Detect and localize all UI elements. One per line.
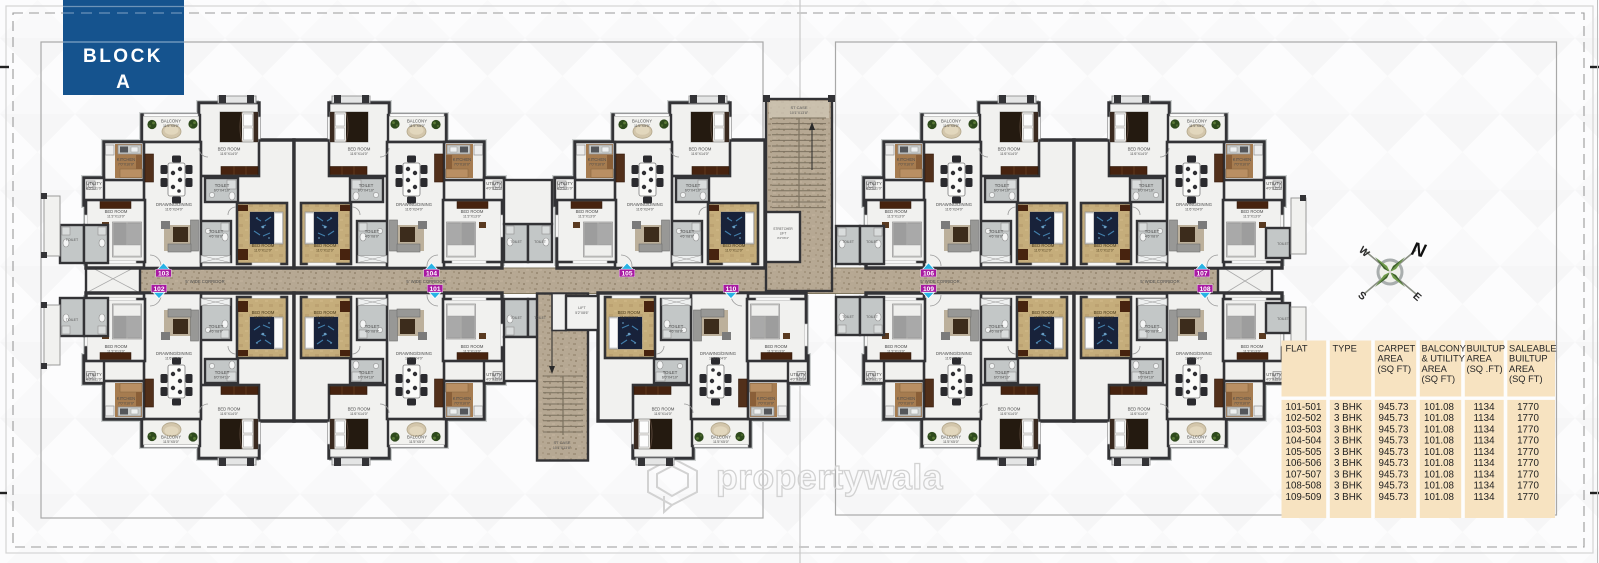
svg-text:4'6"X8'0": 4'6"X8'0" — [209, 330, 224, 334]
svg-text:7'0"X10'0": 7'0"X10'0" — [589, 163, 606, 167]
svg-text:945.73: 945.73 — [1379, 469, 1410, 480]
svg-text:BED ROOM: BED ROOM — [998, 407, 1021, 412]
svg-text:3 BHK: 3 BHK — [1334, 424, 1363, 435]
svg-text:11'5"X5'0": 11'5"X5'0" — [943, 124, 960, 128]
svg-text:BED ROOM: BED ROOM — [314, 243, 337, 248]
svg-text:CARPET: CARPET — [1378, 344, 1416, 354]
svg-text:AREA: AREA — [1509, 364, 1535, 374]
svg-text:KITCHEN: KITCHEN — [757, 396, 775, 401]
svg-text:4'0"X11'0": 4'0"X11'0" — [86, 378, 103, 382]
svg-text:4'0"X11'0": 4'0"X11'0" — [1266, 187, 1283, 191]
svg-text:11'6"X14'0": 11'6"X14'0" — [1130, 412, 1149, 416]
svg-text:TOILET: TOILET — [510, 240, 522, 244]
svg-text:945.73: 945.73 — [1379, 447, 1410, 458]
svg-text:AREA: AREA — [1378, 354, 1404, 364]
svg-text:TOILET: TOILET — [215, 183, 230, 188]
svg-text:11'6"X14'0": 11'6"X14'0" — [691, 152, 710, 156]
svg-text:BED ROOM: BED ROOM — [314, 310, 337, 315]
svg-text:6'0"X4'10": 6'0"X4'10" — [994, 376, 1011, 380]
svg-text:11'5"X5'0": 11'5"X5'0" — [163, 124, 180, 128]
svg-text:BED ROOM: BED ROOM — [723, 243, 746, 248]
svg-text:1134: 1134 — [1473, 458, 1495, 469]
svg-text:3'4"X6'4": 3'4"X6'4" — [777, 236, 789, 240]
svg-text:BED ROOM: BED ROOM — [1094, 310, 1117, 315]
svg-text:7'0"X10'0": 7'0"X10'0" — [898, 402, 915, 406]
svg-text:11'6"X24'0": 11'6"X24'0" — [405, 357, 424, 361]
svg-text:ST CASE: ST CASE — [790, 105, 807, 110]
svg-text:4'0"X11'0": 4'0"X11'0" — [557, 187, 574, 191]
svg-text:103: 103 — [158, 271, 169, 278]
svg-text:11'6"X14'0": 11'6"X14'0" — [350, 412, 369, 416]
svg-text:11'6"X24'0": 11'6"X24'0" — [165, 357, 184, 361]
svg-text:1770: 1770 — [1517, 413, 1539, 424]
svg-text:BED ROOM: BED ROOM — [885, 344, 908, 349]
svg-text:UTILITY: UTILITY — [86, 372, 102, 377]
svg-text:KITCHEN: KITCHEN — [117, 157, 135, 162]
svg-text:11'5"X5'0": 11'5"X5'0" — [943, 440, 960, 444]
svg-text:5'2"X8'6": 5'2"X8'6" — [575, 311, 589, 315]
svg-text:1134: 1134 — [1473, 492, 1495, 503]
svg-text:AREA: AREA — [1467, 354, 1493, 364]
svg-text:BUILTUP: BUILTUP — [1509, 354, 1548, 364]
svg-text:1770: 1770 — [1517, 469, 1539, 480]
svg-text:(SQ .FT): (SQ .FT) — [1467, 364, 1503, 374]
svg-text:11'0"X12'0": 11'0"X12'0" — [1096, 316, 1115, 320]
svg-text:(SQ FT): (SQ FT) — [1422, 374, 1456, 384]
svg-text:SALEABLE: SALEABLE — [1509, 344, 1557, 354]
svg-text:DRAWING/DINING: DRAWING/DINING — [156, 351, 192, 356]
svg-text:4'0"X11'0": 4'0"X11'0" — [866, 378, 883, 382]
svg-text:6'0"X4'10": 6'0"X4'10" — [662, 376, 679, 380]
svg-text:KITCHEN: KITCHEN — [453, 396, 471, 401]
svg-text:4'0"X11'0": 4'0"X11'0" — [86, 187, 103, 191]
svg-text:TOILET: TOILET — [215, 370, 230, 375]
svg-text:11'6"X14'0": 11'6"X14'0" — [1130, 152, 1149, 156]
svg-text:1770: 1770 — [1517, 458, 1539, 469]
svg-text:4'6"X8'0": 4'6"X8'0" — [209, 235, 224, 239]
svg-text:BLOCK: BLOCK — [83, 46, 163, 67]
svg-text:11'3"X13'0": 11'3"X13'0" — [887, 350, 906, 354]
svg-text:11'6"X24'0": 11'6"X24'0" — [945, 208, 964, 212]
svg-text:104-504: 104-504 — [1286, 436, 1323, 447]
svg-text:101.08: 101.08 — [1424, 402, 1455, 413]
svg-text:A: A — [116, 72, 130, 93]
svg-text:UTILITY: UTILITY — [866, 372, 882, 377]
svg-text:11'5"X5'0": 11'5"X5'0" — [163, 440, 180, 444]
svg-text:TOILET: TOILET — [866, 240, 878, 244]
svg-text:1770: 1770 — [1517, 492, 1539, 503]
svg-text:1770: 1770 — [1517, 402, 1539, 413]
svg-text:945.73: 945.73 — [1379, 458, 1410, 469]
svg-text:6'0"X4'10": 6'0"X4'10" — [358, 376, 375, 380]
svg-text:TYPE: TYPE — [1333, 344, 1357, 354]
svg-text:11'0"X12'0": 11'0"X12'0" — [1096, 249, 1115, 253]
svg-text:1770: 1770 — [1517, 424, 1539, 435]
svg-text:KITCHEN: KITCHEN — [453, 157, 471, 162]
svg-text:101.08: 101.08 — [1424, 424, 1455, 435]
svg-text:4'6"X8'0": 4'6"X8'0" — [1145, 235, 1160, 239]
svg-text:BALCONY: BALCONY — [407, 435, 427, 440]
svg-text:4'0"X11'0": 4'0"X11'0" — [866, 187, 883, 191]
svg-text:TOILET: TOILET — [365, 324, 380, 329]
svg-text:BED ROOM: BED ROOM — [105, 209, 128, 214]
svg-text:11'3"X13'0": 11'3"X13'0" — [463, 215, 482, 219]
svg-text:DRAWING/DINING: DRAWING/DINING — [1176, 351, 1212, 356]
svg-text:TOILET: TOILET — [209, 324, 224, 329]
svg-text:11'3"X13'0": 11'3"X13'0" — [107, 215, 126, 219]
svg-text:11'6"X24'0": 11'6"X24'0" — [405, 208, 424, 212]
svg-text:11'6"X24'0": 11'6"X24'0" — [945, 357, 964, 361]
svg-text:KITCHEN: KITCHEN — [897, 157, 915, 162]
svg-text:11'6"X24'0": 11'6"X24'0" — [1185, 208, 1204, 212]
svg-text:101-501: 101-501 — [1286, 402, 1322, 413]
svg-text:3 BHK: 3 BHK — [1334, 481, 1363, 492]
svg-text:4'0"X11'0": 4'0"X11'0" — [486, 378, 503, 382]
svg-text:BED ROOM: BED ROOM — [1128, 147, 1151, 152]
svg-text:105-505: 105-505 — [1286, 447, 1323, 458]
svg-text:11'3"X13'0": 11'3"X13'0" — [887, 215, 906, 219]
svg-text:BED ROOM: BED ROOM — [252, 310, 275, 315]
svg-text:104: 104 — [426, 271, 437, 278]
svg-text:11'6"X14'0": 11'6"X14'0" — [220, 152, 239, 156]
svg-text:BALCONY: BALCONY — [632, 119, 652, 124]
svg-text:TOILET: TOILET — [995, 183, 1010, 188]
svg-text:945.73: 945.73 — [1379, 413, 1410, 424]
svg-text:11'0"X12'0": 11'0"X12'0" — [620, 316, 639, 320]
svg-text:11'6"X14'0": 11'6"X14'0" — [654, 412, 673, 416]
svg-text:103-503: 103-503 — [1286, 424, 1323, 435]
svg-text:TOILET: TOILET — [680, 229, 695, 234]
svg-text:1770: 1770 — [1517, 447, 1539, 458]
svg-text:7'0"X10'0": 7'0"X10'0" — [454, 402, 471, 406]
svg-text:101.08: 101.08 — [1424, 492, 1455, 503]
svg-text:11'3"X13'0": 11'3"X13'0" — [463, 350, 482, 354]
svg-text:11'0"X12'0": 11'0"X12'0" — [725, 249, 744, 253]
svg-text:DRAWING/DINING: DRAWING/DINING — [627, 202, 663, 207]
svg-text:TOILET: TOILET — [842, 240, 854, 244]
svg-text:(SQ FT): (SQ FT) — [1378, 364, 1412, 374]
svg-text:101.08: 101.08 — [1424, 413, 1455, 424]
svg-text:11'5"X5'0": 11'5"X5'0" — [409, 440, 426, 444]
svg-text:LIFT: LIFT — [578, 306, 586, 310]
svg-text:BED ROOM: BED ROOM — [252, 243, 275, 248]
svg-text:UTILITY: UTILITY — [486, 181, 502, 186]
svg-text:BED ROOM: BED ROOM — [885, 209, 908, 214]
svg-text:7'0"X10'0": 7'0"X10'0" — [1234, 402, 1251, 406]
svg-text:& UTILITY: & UTILITY — [1422, 354, 1465, 364]
svg-text:DRAWING/DINING: DRAWING/DINING — [936, 351, 972, 356]
svg-text:11'3"X13'0": 11'3"X13'0" — [107, 350, 126, 354]
svg-text:11'0"X12'0": 11'0"X12'0" — [316, 316, 335, 320]
svg-text:4'6"X8'0": 4'6"X8'0" — [989, 235, 1004, 239]
svg-text:11'3"X13'0": 11'3"X13'0" — [767, 350, 786, 354]
svg-text:TOILET: TOILET — [866, 315, 878, 319]
svg-text:6'0"X4'10": 6'0"X4'10" — [1138, 189, 1155, 193]
svg-text:BALCONY: BALCONY — [1187, 435, 1207, 440]
svg-text:BED ROOM: BED ROOM — [576, 209, 599, 214]
svg-text:110: 110 — [726, 286, 737, 293]
svg-text:6'0"X4'10": 6'0"X4'10" — [214, 189, 231, 193]
svg-text:106-506: 106-506 — [1286, 458, 1323, 469]
svg-text:TOILET: TOILET — [842, 315, 854, 319]
svg-text:11'5"X5'0": 11'5"X5'0" — [713, 440, 730, 444]
svg-text:4'0"X11'0": 4'0"X11'0" — [486, 187, 503, 191]
svg-text:11'0"X12'0": 11'0"X12'0" — [1034, 316, 1053, 320]
svg-text:BALCONY: BALCONY — [941, 119, 961, 124]
svg-text:11'5"X5'0": 11'5"X5'0" — [1189, 440, 1206, 444]
svg-text:945.73: 945.73 — [1379, 492, 1410, 503]
svg-text:3 BHK: 3 BHK — [1334, 413, 1363, 424]
svg-text:11'5"X5'0": 11'5"X5'0" — [1189, 124, 1206, 128]
svg-text:TOILET: TOILET — [510, 316, 522, 320]
svg-text:5' WIDE CORRIDOR: 5' WIDE CORRIDOR — [1140, 279, 1179, 284]
svg-text:11'6"X24'0": 11'6"X24'0" — [165, 208, 184, 212]
svg-text:TOILET: TOILET — [359, 183, 374, 188]
svg-text:BALCONY: BALCONY — [161, 435, 181, 440]
svg-text:4'6"X8'0": 4'6"X8'0" — [680, 235, 695, 239]
svg-text:KITCHEN: KITCHEN — [1233, 157, 1251, 162]
svg-text:4'6"X8'0": 4'6"X8'0" — [989, 330, 1004, 334]
svg-text:BED ROOM: BED ROOM — [1032, 310, 1055, 315]
svg-text:BED ROOM: BED ROOM — [218, 407, 241, 412]
svg-text:1134: 1134 — [1473, 469, 1495, 480]
svg-text:BALCONY: BALCONY — [941, 435, 961, 440]
svg-text:6'0"X4'10": 6'0"X4'10" — [214, 376, 231, 380]
svg-text:3 BHK: 3 BHK — [1334, 447, 1363, 458]
svg-text:TOILET: TOILET — [663, 370, 678, 375]
svg-text:10'1"X13'8": 10'1"X13'8" — [790, 111, 809, 115]
svg-text:1134: 1134 — [1473, 413, 1495, 424]
svg-text:7'0"X10'0": 7'0"X10'0" — [118, 163, 135, 167]
svg-text:5' WIDE CORRIDOR: 5' WIDE CORRIDOR — [406, 279, 445, 284]
svg-text:BED ROOM: BED ROOM — [1032, 243, 1055, 248]
svg-text:11'6"X24'0": 11'6"X24'0" — [1185, 357, 1204, 361]
svg-text:BED ROOM: BED ROOM — [105, 344, 128, 349]
svg-text:TOILET: TOILET — [66, 318, 79, 322]
svg-text:7'0"X10'0": 7'0"X10'0" — [118, 402, 135, 406]
svg-text:TOILET: TOILET — [1139, 370, 1154, 375]
svg-text:945.73: 945.73 — [1379, 436, 1410, 447]
svg-text:BALCONY: BALCONY — [1187, 119, 1207, 124]
svg-text:BUILTUP: BUILTUP — [1467, 344, 1506, 354]
svg-text:DRAWING/DINING: DRAWING/DINING — [700, 351, 736, 356]
svg-text:TOILET: TOILET — [989, 324, 1004, 329]
svg-text:KITCHEN: KITCHEN — [1233, 396, 1251, 401]
svg-text:UTILITY: UTILITY — [790, 372, 806, 377]
svg-text:7'0"X10'0": 7'0"X10'0" — [1234, 163, 1251, 167]
svg-text:TOILET: TOILET — [686, 183, 701, 188]
svg-text:1770: 1770 — [1517, 436, 1539, 447]
svg-text:1134: 1134 — [1473, 447, 1495, 458]
svg-text:11'5"X5'0": 11'5"X5'0" — [409, 124, 426, 128]
svg-text:11'5"X5'0": 11'5"X5'0" — [634, 124, 651, 128]
svg-text:106: 106 — [923, 271, 934, 278]
svg-text:4'0"X11'0": 4'0"X11'0" — [790, 378, 807, 382]
svg-text:BED ROOM: BED ROOM — [1094, 243, 1117, 248]
svg-text:BED ROOM: BED ROOM — [1241, 209, 1264, 214]
svg-text:107-507: 107-507 — [1286, 469, 1322, 480]
svg-text:102: 102 — [153, 286, 164, 293]
svg-text:101.08: 101.08 — [1424, 447, 1455, 458]
svg-text:UTILITY: UTILITY — [486, 372, 502, 377]
svg-text:3 BHK: 3 BHK — [1334, 436, 1363, 447]
svg-text:BED ROOM: BED ROOM — [1241, 344, 1264, 349]
svg-text:BED ROOM: BED ROOM — [461, 344, 484, 349]
svg-text:BED ROOM: BED ROOM — [652, 407, 675, 412]
svg-text:5' WIDE CORRIDOR: 5' WIDE CORRIDOR — [920, 279, 959, 284]
svg-text:TOILET: TOILET — [359, 370, 374, 375]
svg-text:11'0"X12'0": 11'0"X12'0" — [316, 249, 335, 253]
svg-text:KITCHEN: KITCHEN — [897, 396, 915, 401]
svg-text:UTILITY: UTILITY — [86, 181, 102, 186]
svg-text:4'0"X11'0": 4'0"X11'0" — [1266, 378, 1283, 382]
svg-text:LIFT: LIFT — [780, 232, 787, 236]
svg-text:11'3"X13'0": 11'3"X13'0" — [1243, 215, 1262, 219]
svg-text:BALCONY: BALCONY — [407, 119, 427, 124]
svg-text:3 BHK: 3 BHK — [1334, 492, 1363, 503]
svg-text:945.73: 945.73 — [1379, 402, 1410, 413]
svg-text:TOILET: TOILET — [66, 238, 79, 242]
svg-text:11'0"X12'0": 11'0"X12'0" — [1034, 249, 1053, 253]
svg-text:TOILET: TOILET — [209, 229, 224, 234]
svg-text:4'6"X8'0": 4'6"X8'0" — [365, 330, 380, 334]
svg-text:TOILET: TOILET — [534, 240, 546, 244]
svg-text:BED ROOM: BED ROOM — [348, 407, 371, 412]
svg-text:TOILET: TOILET — [989, 229, 1004, 234]
svg-text:BED ROOM: BED ROOM — [461, 209, 484, 214]
svg-text:TOILET: TOILET — [1145, 324, 1160, 329]
svg-text:BED ROOM: BED ROOM — [618, 310, 641, 315]
svg-text:BALCONY: BALCONY — [161, 119, 181, 124]
svg-text:10'1"X13'8": 10'1"X13'8" — [553, 446, 572, 450]
svg-text:11'6"X14'0": 11'6"X14'0" — [1000, 152, 1019, 156]
svg-text:4'6"X8'0": 4'6"X8'0" — [1145, 330, 1160, 334]
svg-text:6'0"X4'10": 6'0"X4'10" — [358, 189, 375, 193]
svg-text:1134: 1134 — [1473, 424, 1495, 435]
svg-text:ST CASE: ST CASE — [553, 440, 570, 445]
svg-text:TOILET: TOILET — [995, 370, 1010, 375]
svg-text:945.73: 945.73 — [1379, 424, 1410, 435]
svg-text:7'0"X10'0": 7'0"X10'0" — [758, 402, 775, 406]
svg-text:945.73: 945.73 — [1379, 481, 1410, 492]
svg-text:7'0"X10'0": 7'0"X10'0" — [898, 163, 915, 167]
svg-text:DRAWING/DINING: DRAWING/DINING — [1176, 202, 1212, 207]
svg-text:3 BHK: 3 BHK — [1334, 458, 1363, 469]
svg-text:TOILET: TOILET — [669, 324, 684, 329]
svg-text:1134: 1134 — [1473, 402, 1495, 413]
svg-text:UTILITY: UTILITY — [866, 181, 882, 186]
svg-text:UTILITY: UTILITY — [1266, 181, 1282, 186]
svg-text:TOILET: TOILET — [1277, 242, 1289, 246]
svg-text:TOILET: TOILET — [365, 229, 380, 234]
svg-text:BED ROOM: BED ROOM — [689, 147, 712, 152]
svg-text:11'0"X12'0": 11'0"X12'0" — [254, 249, 273, 253]
svg-text:105: 105 — [621, 271, 632, 278]
svg-text:AREA: AREA — [1422, 364, 1448, 374]
svg-text:101.08: 101.08 — [1424, 469, 1455, 480]
svg-text:11'3"X13'0": 11'3"X13'0" — [578, 215, 597, 219]
svg-text:3 BHK: 3 BHK — [1334, 469, 1363, 480]
svg-text:6'0"X4'10": 6'0"X4'10" — [685, 189, 702, 193]
svg-text:3 BHK: 3 BHK — [1334, 402, 1363, 413]
svg-text:KITCHEN: KITCHEN — [117, 396, 135, 401]
svg-text:propertywala: propertywala — [716, 457, 943, 497]
svg-text:DRAWING/DINING: DRAWING/DINING — [936, 202, 972, 207]
svg-text:11'3"X13'0": 11'3"X13'0" — [1243, 350, 1262, 354]
svg-text:BED ROOM: BED ROOM — [1128, 407, 1151, 412]
svg-text:DRAWING/DINING: DRAWING/DINING — [396, 351, 432, 356]
svg-text:TOILET: TOILET — [534, 316, 546, 320]
svg-text:102-502: 102-502 — [1286, 413, 1322, 424]
svg-text:5' WIDE CORRIDOR: 5' WIDE CORRIDOR — [185, 279, 224, 284]
svg-text:1770: 1770 — [1517, 481, 1539, 492]
svg-text:BED ROOM: BED ROOM — [765, 344, 788, 349]
svg-text:UTILITY: UTILITY — [1266, 372, 1282, 377]
svg-text:11'6"X14'0": 11'6"X14'0" — [220, 412, 239, 416]
svg-text:108-508: 108-508 — [1286, 481, 1323, 492]
svg-text:11'6"X14'0": 11'6"X14'0" — [350, 152, 369, 156]
svg-text:101: 101 — [429, 286, 440, 293]
svg-text:107: 107 — [1196, 271, 1207, 278]
svg-text:11'0"X12'0": 11'0"X12'0" — [254, 316, 273, 320]
svg-text:BED ROOM: BED ROOM — [998, 147, 1021, 152]
svg-text:TOILET: TOILET — [1145, 229, 1160, 234]
svg-text:11'6"X24'0": 11'6"X24'0" — [709, 357, 728, 361]
svg-text:(SQ FT): (SQ FT) — [1509, 374, 1543, 384]
svg-text:BED ROOM: BED ROOM — [348, 147, 371, 152]
svg-text:BED ROOM: BED ROOM — [218, 147, 241, 152]
svg-text:6'0"X4'10": 6'0"X4'10" — [1138, 376, 1155, 380]
svg-text:BALCONY: BALCONY — [1422, 344, 1466, 354]
svg-text:4'6"X8'0": 4'6"X8'0" — [365, 235, 380, 239]
svg-text:STRETCHER: STRETCHER — [773, 227, 793, 231]
svg-text:101.08: 101.08 — [1424, 458, 1455, 469]
svg-text:101.08: 101.08 — [1424, 436, 1455, 447]
svg-text:UTILITY: UTILITY — [557, 181, 573, 186]
svg-text:TOILET: TOILET — [1139, 183, 1154, 188]
svg-text:11'6"X14'0": 11'6"X14'0" — [1000, 412, 1019, 416]
svg-text:DRAWING/DINING: DRAWING/DINING — [396, 202, 432, 207]
svg-text:DRAWING/DINING: DRAWING/DINING — [156, 202, 192, 207]
svg-text:6'0"X4'10": 6'0"X4'10" — [994, 189, 1011, 193]
svg-text:4'6"X8'0": 4'6"X8'0" — [669, 330, 684, 334]
svg-text:1134: 1134 — [1473, 481, 1495, 492]
svg-text:109-509: 109-509 — [1286, 492, 1322, 503]
svg-text:1134: 1134 — [1473, 436, 1495, 447]
svg-text:7'0"X10'0": 7'0"X10'0" — [454, 163, 471, 167]
svg-text:FLAT: FLAT — [1286, 344, 1308, 354]
svg-text:11'6"X24'0": 11'6"X24'0" — [636, 208, 655, 212]
svg-text:BALCONY: BALCONY — [711, 435, 731, 440]
svg-text:109: 109 — [923, 286, 934, 293]
svg-text:108: 108 — [1199, 286, 1210, 293]
svg-text:KITCHEN: KITCHEN — [588, 157, 606, 162]
svg-text:101.08: 101.08 — [1424, 481, 1455, 492]
svg-text:TOILET: TOILET — [1277, 317, 1289, 321]
